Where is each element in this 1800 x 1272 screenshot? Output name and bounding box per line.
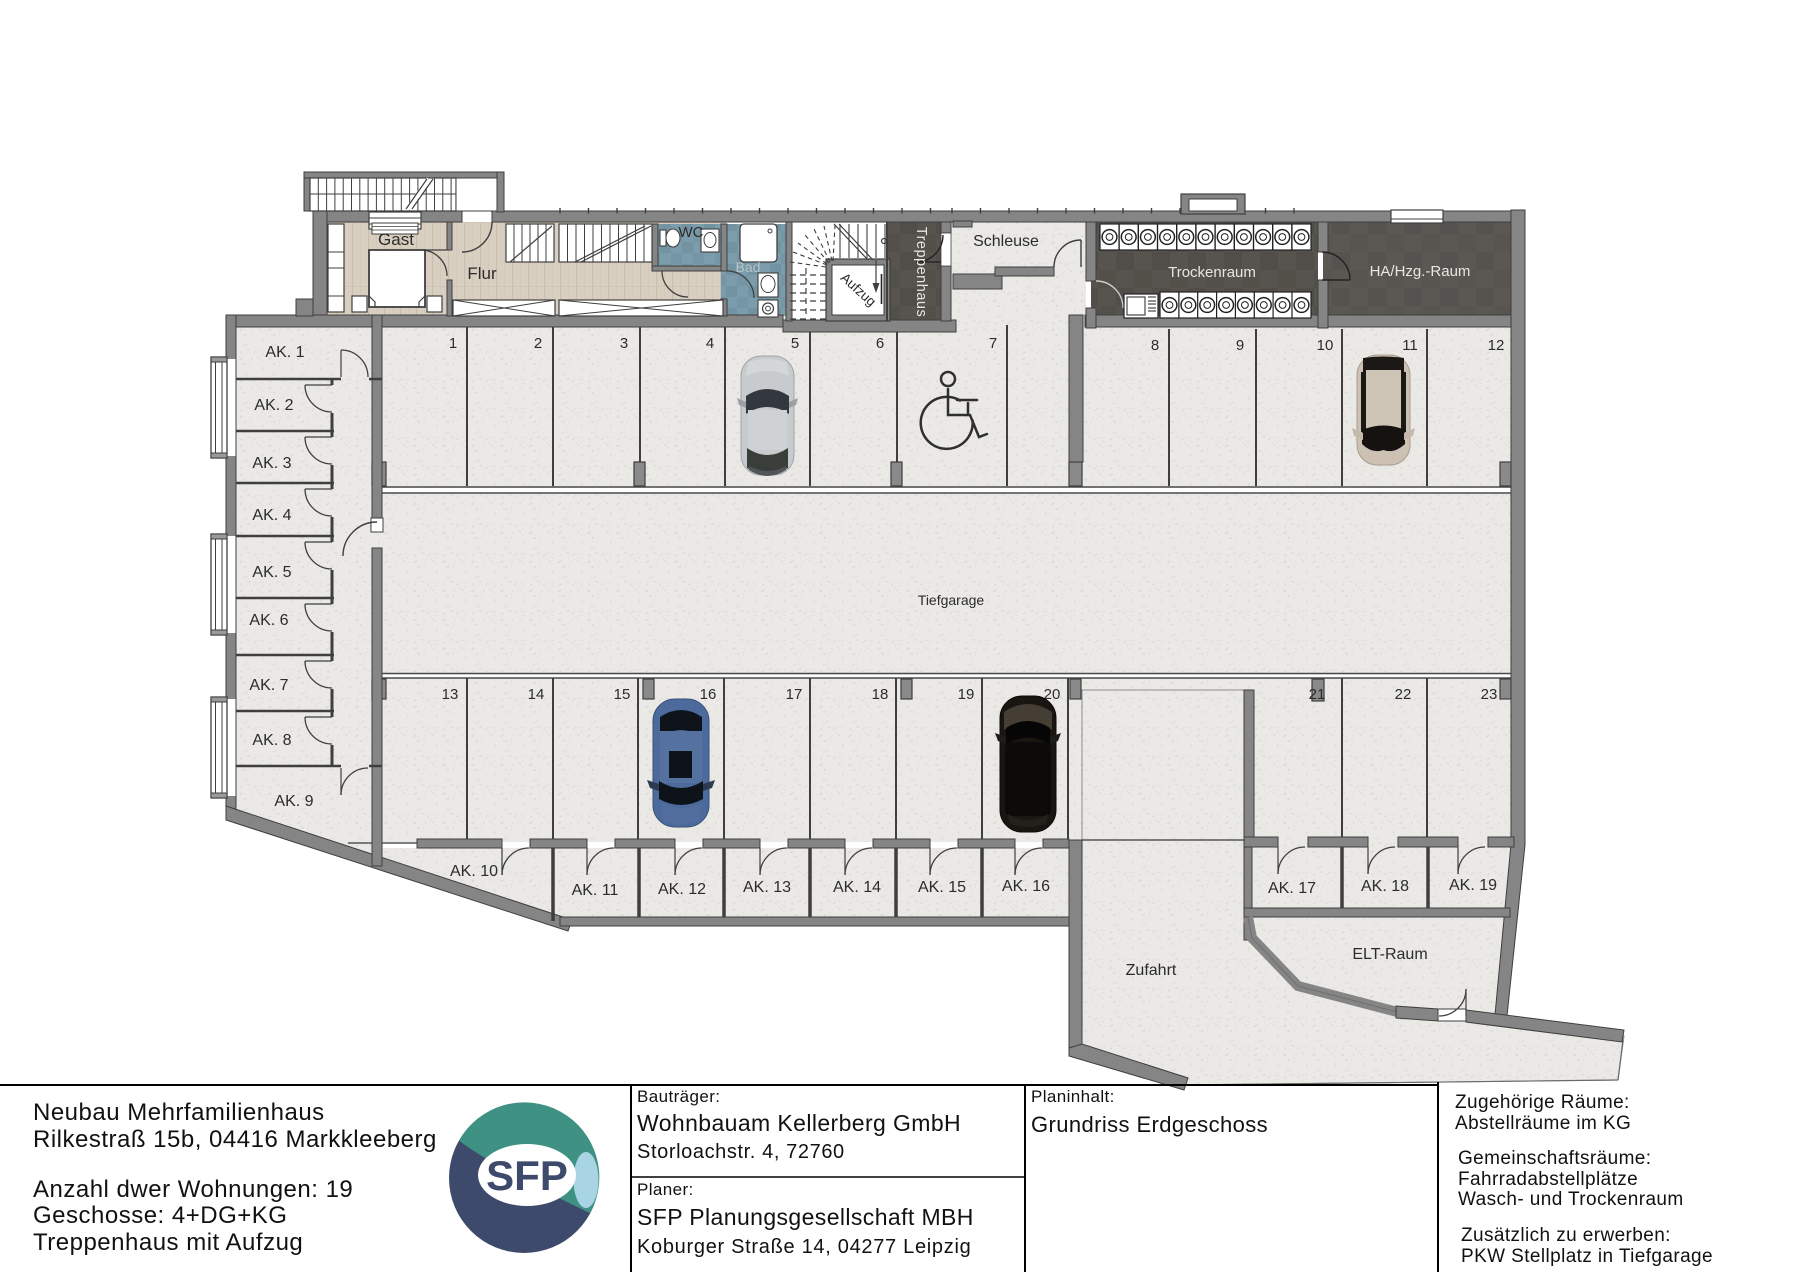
svg-text:Flur: Flur <box>467 264 497 283</box>
svg-text:22: 22 <box>1395 686 1412 703</box>
svg-text:Trockenraum: Trockenraum <box>1168 264 1256 281</box>
svg-text:5: 5 <box>791 335 799 352</box>
svg-text:18: 18 <box>872 686 889 703</box>
svg-text:19: 19 <box>958 686 975 703</box>
svg-text:Wasch- und Trockenraum: Wasch- und Trockenraum <box>1458 1189 1684 1210</box>
svg-text:Wohnbauam Kellerberg GmbH: Wohnbauam Kellerberg GmbH <box>637 1110 961 1136</box>
svg-text:AK. 12: AK. 12 <box>658 881 706 898</box>
svg-text:Planer:: Planer: <box>637 1180 694 1199</box>
svg-text:AK. 5: AK. 5 <box>252 564 291 581</box>
svg-text:Gemeinschaftsräume:: Gemeinschaftsräume: <box>1458 1148 1651 1169</box>
svg-text:Fahrradabstellplätze: Fahrradabstellplätze <box>1458 1169 1638 1190</box>
svg-text:17: 17 <box>786 686 803 703</box>
svg-text:11: 11 <box>1402 337 1418 354</box>
svg-text:AK. 2: AK. 2 <box>254 397 293 414</box>
svg-text:SFP: SFP <box>486 1152 568 1199</box>
svg-text:Bad: Bad <box>736 259 761 275</box>
svg-text:AK. 18: AK. 18 <box>1361 878 1409 895</box>
svg-text:10: 10 <box>1317 337 1334 354</box>
svg-text:AK. 15: AK. 15 <box>918 879 966 896</box>
svg-text:13: 13 <box>442 686 459 703</box>
svg-text:Storloachstr. 4, 72760: Storloachstr. 4, 72760 <box>637 1141 845 1163</box>
svg-text:AK. 3: AK. 3 <box>252 455 291 472</box>
svg-text:Bauträger:: Bauträger: <box>637 1087 720 1106</box>
svg-text:AK. 17: AK. 17 <box>1268 880 1316 897</box>
svg-text:AK. 7: AK. 7 <box>249 677 288 694</box>
svg-text:7: 7 <box>989 335 997 352</box>
svg-text:Abstellräume im KG: Abstellräume im KG <box>1455 1113 1631 1134</box>
svg-text:4: 4 <box>706 335 714 352</box>
svg-text:Geschosse: 4+DG+KG: Geschosse: 4+DG+KG <box>33 1202 287 1229</box>
svg-text:2: 2 <box>534 335 542 352</box>
svg-text:Zugehörige Räume:: Zugehörige Räume: <box>1455 1092 1630 1113</box>
svg-text:Rilkestraß 15b, 04416 Markklee: Rilkestraß 15b, 04416 Markkleeberg <box>33 1126 437 1153</box>
svg-text:HA/Hzg.-Raum: HA/Hzg.-Raum <box>1370 263 1471 280</box>
svg-text:Schleuse: Schleuse <box>973 233 1039 250</box>
svg-text:AK. 4: AK. 4 <box>252 507 291 524</box>
svg-text:1: 1 <box>449 335 457 352</box>
svg-text:AK. 10: AK. 10 <box>450 863 498 880</box>
svg-text:15: 15 <box>614 686 631 703</box>
svg-text:AK. 19: AK. 19 <box>1449 877 1497 894</box>
svg-text:8: 8 <box>1151 337 1159 354</box>
svg-text:Zufahrt: Zufahrt <box>1126 962 1177 979</box>
svg-text:16: 16 <box>700 686 717 703</box>
svg-text:Zusätzlich zu erwerben:: Zusätzlich zu erwerben: <box>1461 1225 1671 1246</box>
svg-text:AK. 14: AK. 14 <box>833 879 881 896</box>
svg-text:AK. 8: AK. 8 <box>252 732 291 749</box>
svg-text:ELT-Raum: ELT-Raum <box>1352 946 1427 963</box>
svg-text:Planinhalt:: Planinhalt: <box>1031 1087 1115 1106</box>
svg-text:Treppenhaus mit Aufzug: Treppenhaus mit Aufzug <box>33 1229 303 1256</box>
svg-text:12: 12 <box>1488 337 1505 354</box>
svg-text:AK. 11: AK. 11 <box>572 882 619 899</box>
svg-text:3: 3 <box>620 335 628 352</box>
svg-text:AK. 1: AK. 1 <box>265 344 304 361</box>
svg-text:AK. 9: AK. 9 <box>274 793 313 810</box>
svg-text:Anzahl dwer Wohnungen: 19: Anzahl dwer Wohnungen: 19 <box>33 1176 353 1203</box>
svg-text:Tiefgarage: Tiefgarage <box>918 592 985 608</box>
svg-text:Treppenhaus: Treppenhaus <box>913 227 929 317</box>
svg-text:AK. 13: AK. 13 <box>743 879 791 896</box>
svg-text:WC: WC <box>679 224 704 241</box>
svg-text:AK. 6: AK. 6 <box>249 612 288 629</box>
svg-text:Koburger Straße 14, 04277 Leip: Koburger Straße 14, 04277 Leipzig <box>637 1236 971 1258</box>
svg-text:14: 14 <box>528 686 545 703</box>
svg-text:SFP Planungsgesellschaft MBH: SFP Planungsgesellschaft MBH <box>637 1204 974 1230</box>
svg-text:Gast: Gast <box>378 230 414 249</box>
svg-text:6: 6 <box>876 335 884 352</box>
svg-text:9: 9 <box>1236 337 1244 354</box>
svg-text:AK. 16: AK. 16 <box>1002 878 1050 895</box>
svg-text:Neubau Mehrfamilienhaus: Neubau Mehrfamilienhaus <box>33 1099 325 1126</box>
svg-text:PKW Stellplatz in Tiefgarage: PKW Stellplatz in Tiefgarage <box>1461 1246 1713 1267</box>
svg-text:21: 21 <box>1309 686 1326 703</box>
svg-text:Grundriss Erdgeschoss: Grundriss Erdgeschoss <box>1031 1112 1268 1137</box>
svg-text:23: 23 <box>1481 686 1498 703</box>
